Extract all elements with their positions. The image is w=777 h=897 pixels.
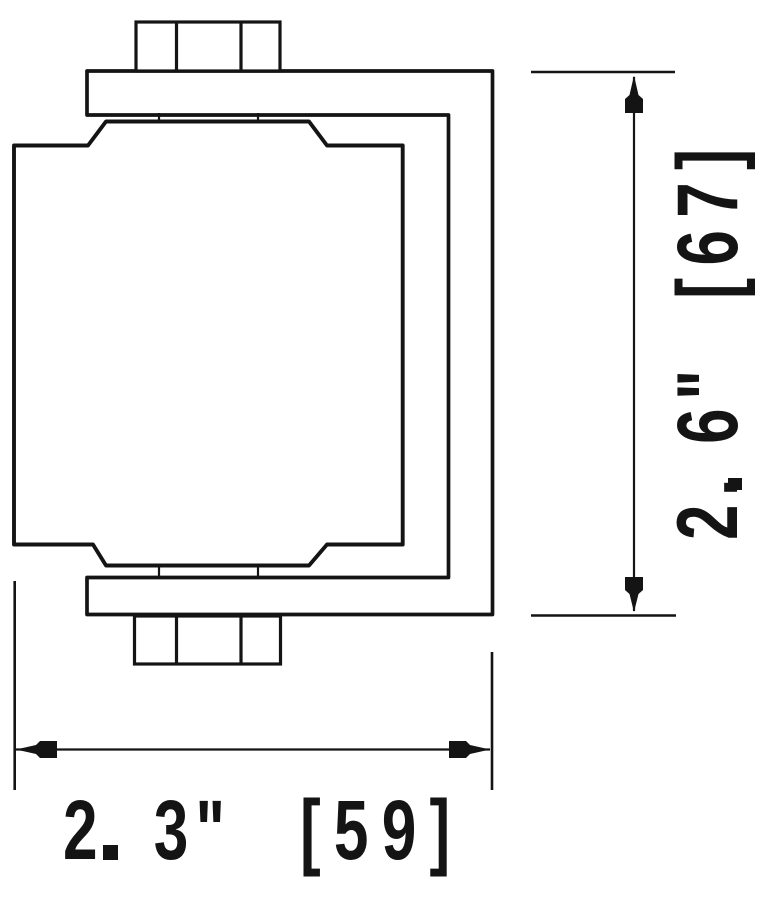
- svg-text:2. 3": 2. 3": [63, 783, 225, 877]
- svg-text:2. 6": 2. 6": [661, 370, 756, 540]
